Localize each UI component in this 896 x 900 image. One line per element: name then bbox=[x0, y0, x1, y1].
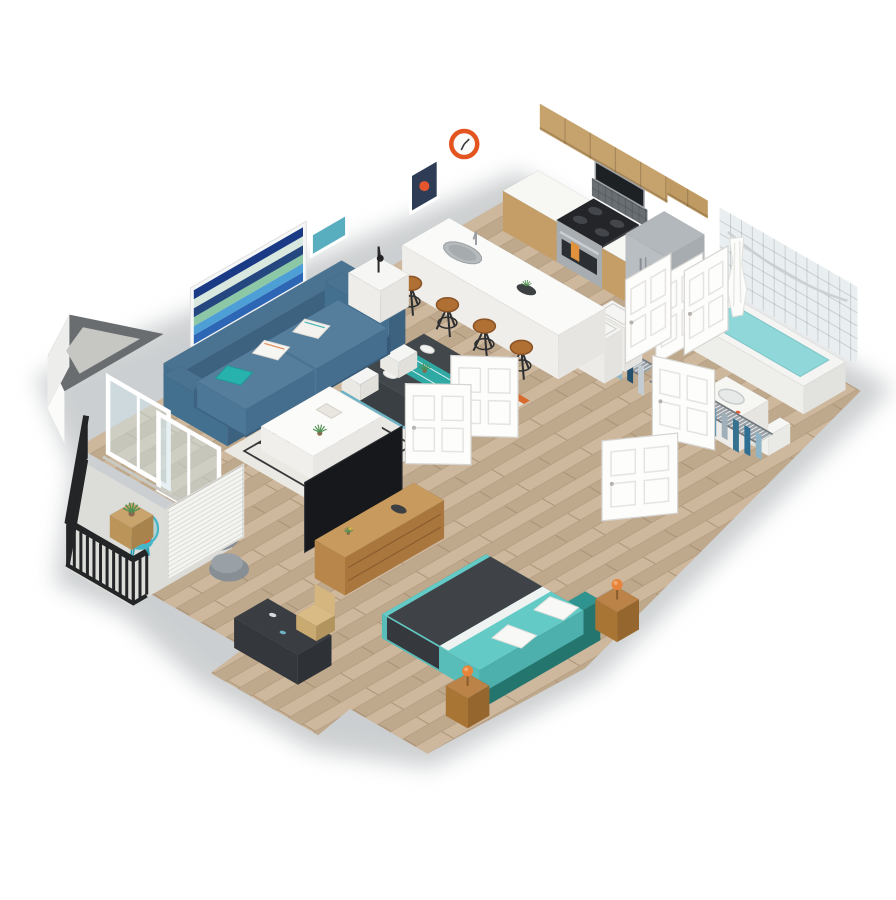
small-navy-artwork bbox=[411, 159, 439, 213]
floor-plan-canvas bbox=[0, 0, 896, 900]
wall-clock bbox=[451, 131, 477, 157]
closet-door-open bbox=[602, 433, 678, 521]
bedroom-door-open bbox=[405, 384, 471, 465]
cabinet-above-fridge bbox=[668, 177, 708, 218]
apartment-3d-floor-plan bbox=[0, 0, 896, 900]
